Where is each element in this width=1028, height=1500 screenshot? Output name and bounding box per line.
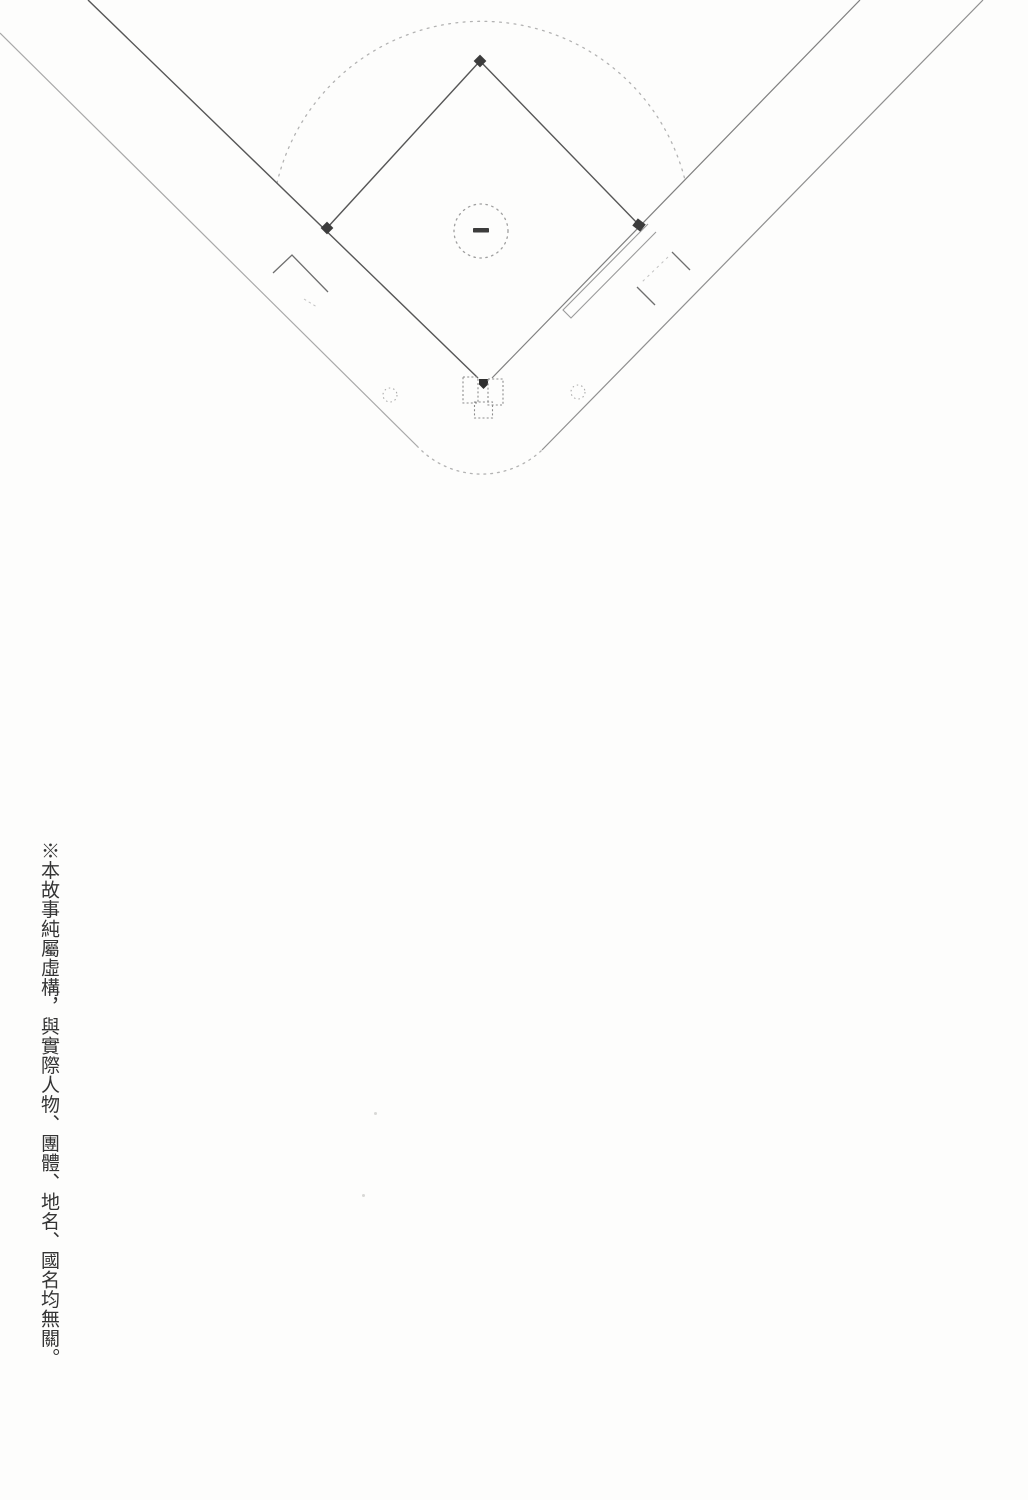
on-deck-circle-left <box>383 388 397 402</box>
boundary-line-right <box>542 0 983 450</box>
basepath-second-to-first <box>480 61 639 225</box>
boundary-line-left <box>0 33 417 446</box>
scan-speck <box>362 1194 365 1197</box>
pitchers-rubber <box>473 228 489 233</box>
outfield-grass-arc <box>277 21 685 183</box>
catchers-box <box>475 402 493 418</box>
running-lane-first-base <box>563 224 656 318</box>
foul-line-left <box>88 0 478 378</box>
basepath-second-to-third <box>327 61 480 228</box>
disclaimer-text: ※本故事純屬虛構，與實際人物、團體、地名、國名均無關。 <box>34 841 62 1381</box>
scan-speck <box>374 1112 377 1115</box>
coach-box-third-faint-edge <box>304 299 317 307</box>
home-plate <box>479 379 488 389</box>
coach-box-first-bottom-edge <box>637 287 655 305</box>
foul-line-right <box>492 0 860 378</box>
coach-box-first-base <box>637 252 690 305</box>
backstop-arc <box>417 446 542 474</box>
batters-box-right <box>488 379 503 405</box>
batters-box-left <box>463 377 478 403</box>
on-deck-circle-right <box>571 385 585 399</box>
coach-box-third-corner <box>273 255 328 292</box>
coach-box-first-top-edge <box>672 252 690 270</box>
baseball-field-diagram <box>0 0 1028 500</box>
coach-box-first-faint-edge <box>641 257 668 283</box>
page: ※本故事純屬虛構，與實際人物、團體、地名、國名均無關。 <box>0 0 1028 1500</box>
coach-box-third-base <box>273 255 328 307</box>
